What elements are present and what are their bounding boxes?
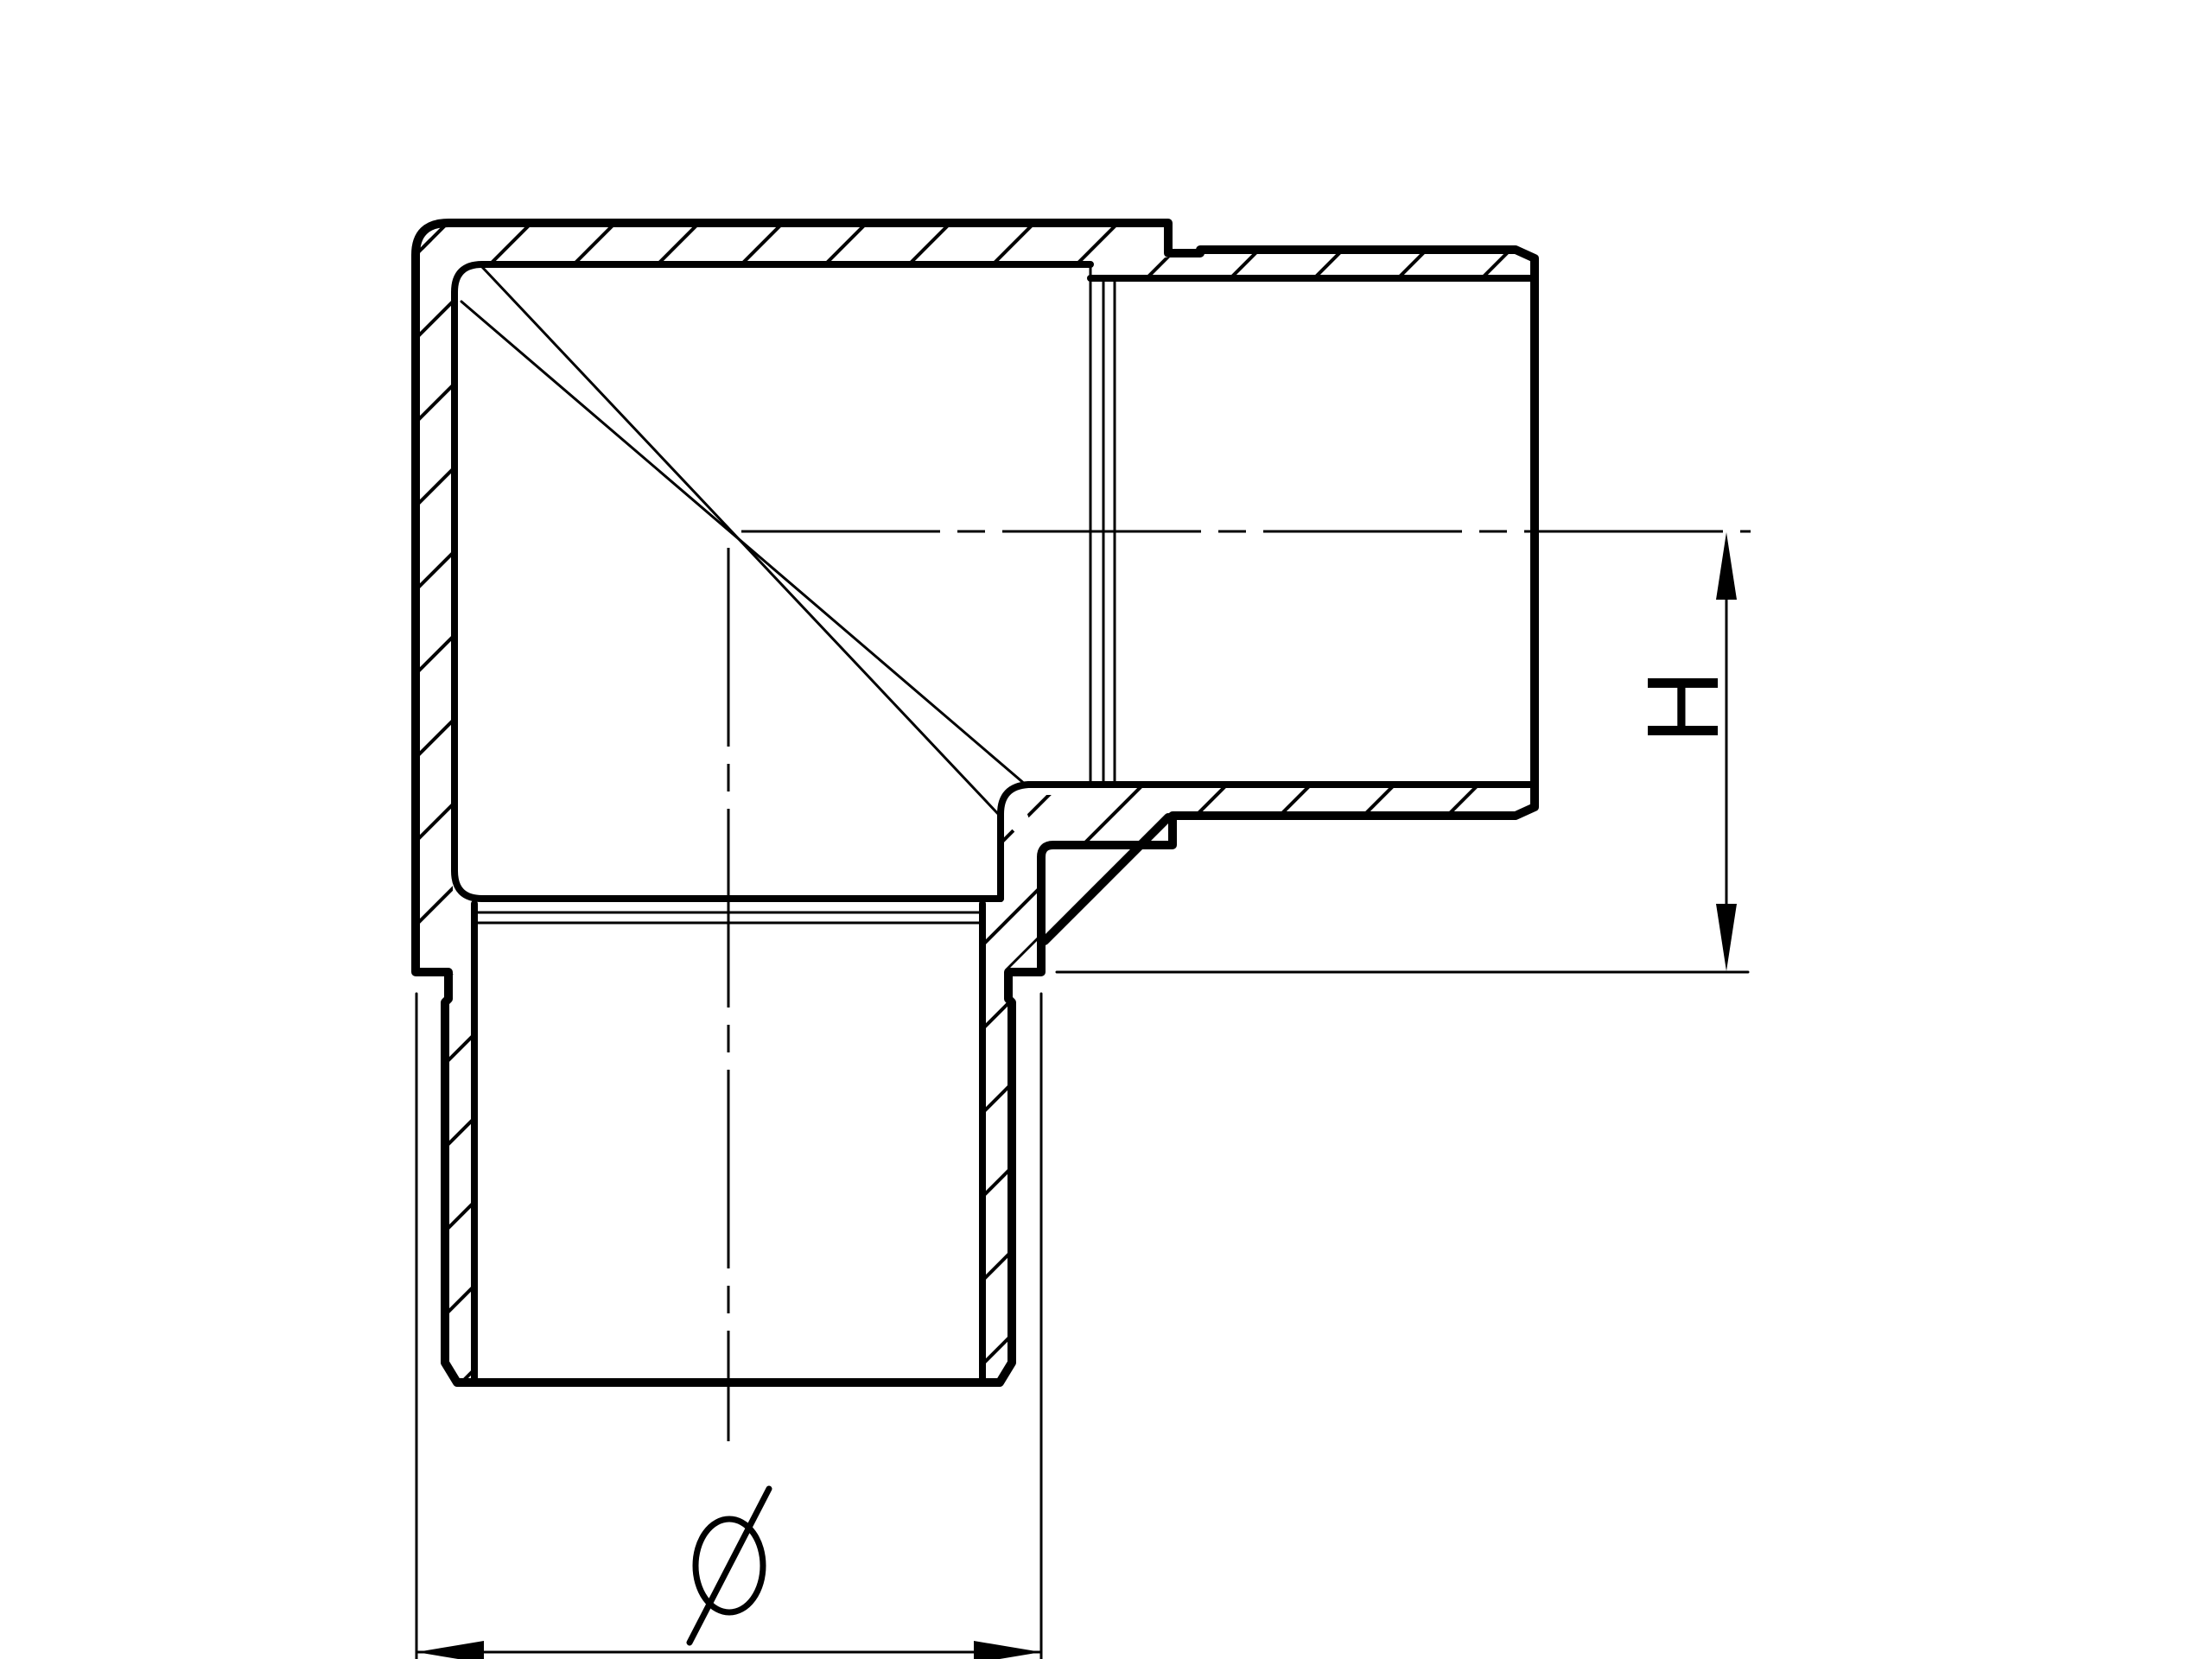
drawing-sheet: H (0, 0, 2212, 1659)
hatch-top-spigot-wall (1197, 253, 1531, 275)
technical-drawing: H (0, 0, 2212, 1659)
h-dimension-label: H (1626, 670, 1740, 743)
hatch-left-wall (420, 228, 453, 969)
hatch-corner-band-inner (986, 909, 1004, 968)
hatch-vertical-spigot-left-wall (448, 974, 472, 1380)
hatch-vertical-spigot-right-wall (985, 974, 1009, 1380)
